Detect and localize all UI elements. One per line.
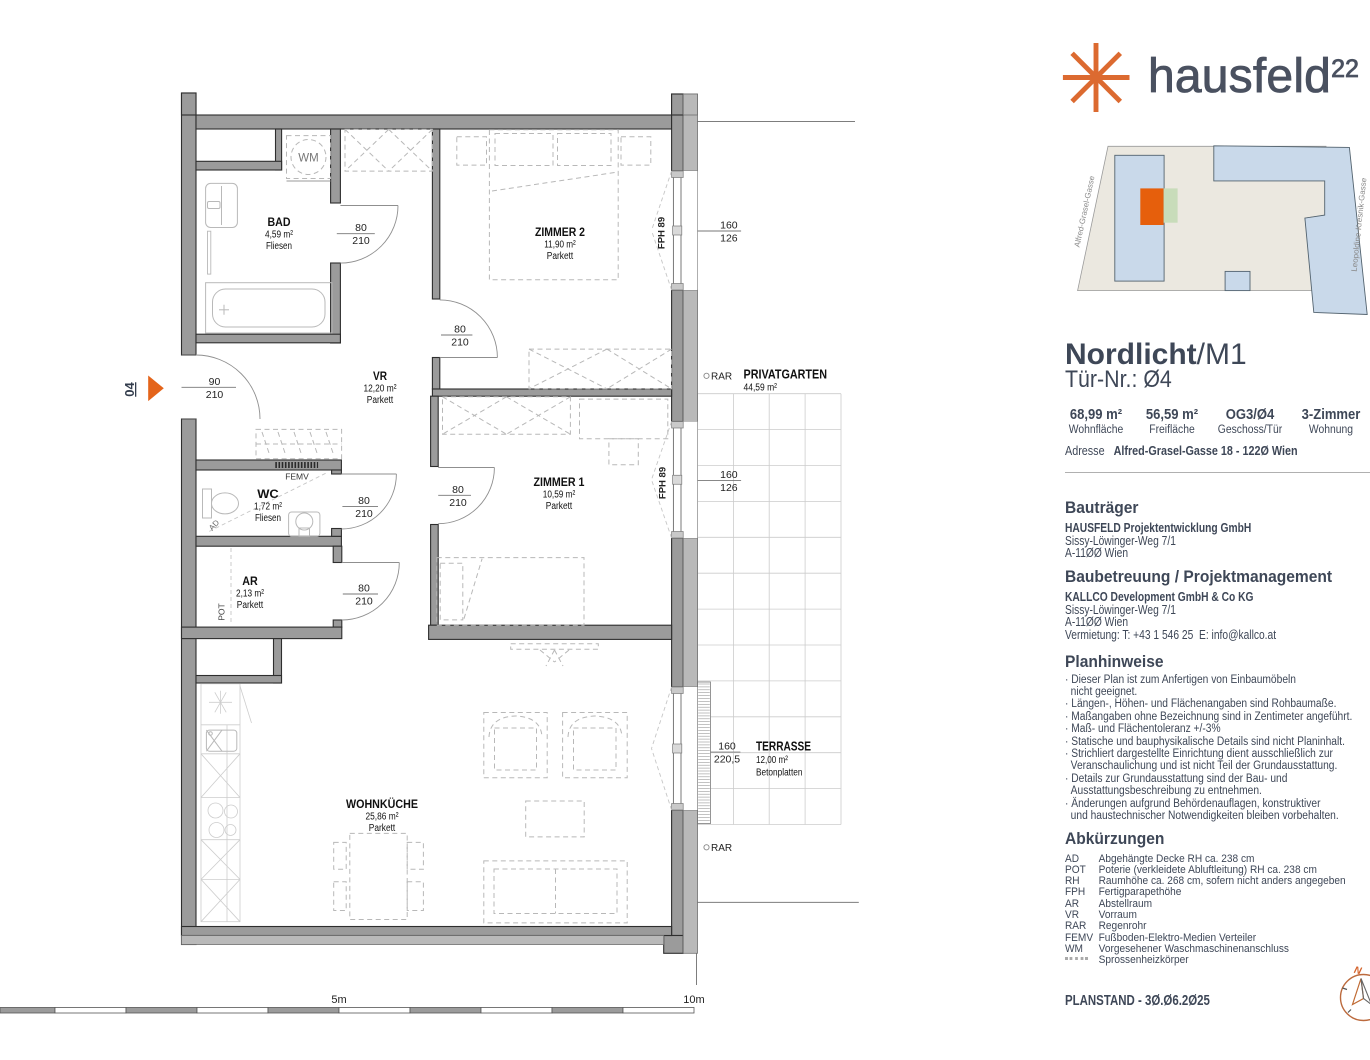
svg-text:210: 210 xyxy=(451,337,469,349)
svg-text:FPH 89: FPH 89 xyxy=(657,217,668,249)
svg-text:RAR: RAR xyxy=(711,843,732,854)
svg-text:210: 210 xyxy=(352,235,370,247)
svg-text:04: 04 xyxy=(122,382,137,397)
svg-text:25,86 m²: 25,86 m² xyxy=(366,812,400,823)
svg-text:80: 80 xyxy=(452,484,464,496)
svg-text:ZIMMER 2: ZIMMER 2 xyxy=(535,227,585,239)
svg-text:126: 126 xyxy=(720,233,738,245)
svg-text:Parkett: Parkett xyxy=(237,600,264,611)
svg-text:AD: AD xyxy=(207,518,221,532)
svg-text:210: 210 xyxy=(355,508,373,520)
svg-text:1,72 m²: 1,72 m² xyxy=(254,502,283,513)
svg-text:FPH 89: FPH 89 xyxy=(658,467,669,499)
svg-text:Parkett: Parkett xyxy=(546,501,573,512)
svg-text:160: 160 xyxy=(720,469,738,481)
svg-text:210: 210 xyxy=(449,497,467,509)
svg-text:10,59 m²: 10,59 m² xyxy=(543,490,576,501)
svg-text:BAD: BAD xyxy=(268,217,291,229)
svg-text:Parkett: Parkett xyxy=(367,395,394,406)
svg-text:TERRASSE: TERRASSE xyxy=(756,739,811,754)
svg-text:80: 80 xyxy=(454,324,466,336)
svg-text:4,59 m²: 4,59 m² xyxy=(265,230,294,241)
svg-text:220,5: 220,5 xyxy=(714,754,740,766)
svg-text:POT: POT xyxy=(217,603,227,620)
svg-text:11,90 m²: 11,90 m² xyxy=(544,240,576,251)
svg-text:160: 160 xyxy=(720,220,738,232)
svg-text:80: 80 xyxy=(355,222,367,234)
svg-text:N: N xyxy=(1353,965,1363,978)
svg-text:VR: VR xyxy=(373,371,388,383)
svg-text:210: 210 xyxy=(206,389,224,401)
svg-text:12,00 m²: 12,00 m² xyxy=(756,755,789,766)
svg-text:10m: 10m xyxy=(683,994,704,1006)
svg-text:44,59 m²: 44,59 m² xyxy=(744,383,778,394)
svg-text:WOHNKÜCHE: WOHNKÜCHE xyxy=(346,798,418,811)
svg-text:RAR: RAR xyxy=(711,372,732,383)
svg-text:80: 80 xyxy=(358,495,370,507)
svg-text:Betonplatten: Betonplatten xyxy=(756,768,803,779)
svg-text:90: 90 xyxy=(209,376,221,388)
svg-text:PRIVATGARTEN: PRIVATGARTEN xyxy=(744,367,828,382)
svg-text:12,20 m²: 12,20 m² xyxy=(364,384,398,395)
svg-text:Fliesen: Fliesen xyxy=(266,241,292,252)
svg-text:Parkett: Parkett xyxy=(547,251,574,262)
svg-text:WM: WM xyxy=(298,153,318,165)
svg-text:2,13 m²: 2,13 m² xyxy=(236,589,265,600)
svg-text:80: 80 xyxy=(358,583,370,595)
svg-text:AR: AR xyxy=(242,576,258,588)
svg-text:210: 210 xyxy=(355,596,373,608)
svg-text:Fliesen: Fliesen xyxy=(255,513,281,524)
svg-text:5m: 5m xyxy=(331,994,346,1006)
svg-text:WC: WC xyxy=(257,489,279,501)
svg-text:FEMV: FEMV xyxy=(285,472,309,482)
svg-text:ZIMMER 1: ZIMMER 1 xyxy=(534,477,586,489)
svg-text:Parkett: Parkett xyxy=(369,823,396,834)
svg-text:160: 160 xyxy=(718,741,736,753)
svg-text:126: 126 xyxy=(720,482,738,494)
